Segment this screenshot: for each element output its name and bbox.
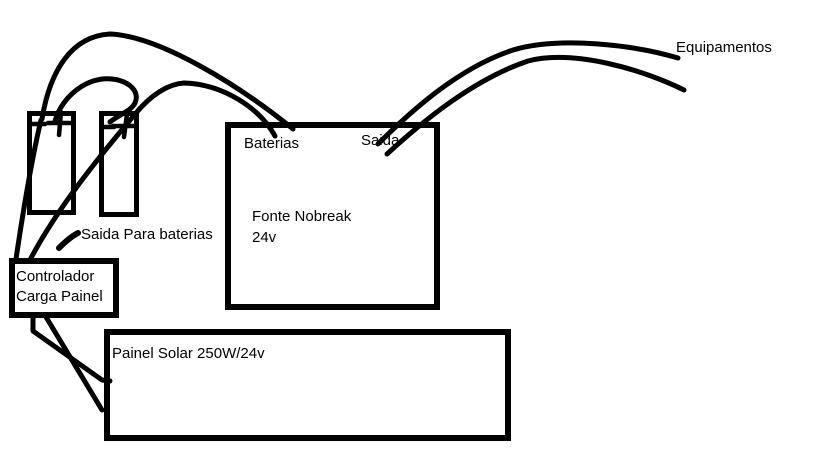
wire-controller-to-painel-1 xyxy=(33,317,110,381)
controlador-label-line1: Controlador xyxy=(16,267,103,287)
wire-battery1-to-nobreak-baterias xyxy=(42,34,293,129)
saida-port-label: Saida xyxy=(361,131,399,151)
painel-solar-label: Painel Solar 250W/24v xyxy=(112,344,265,364)
wire-controller-to-painel-2 xyxy=(46,317,102,410)
battery2-box xyxy=(99,111,139,217)
saida-para-baterias-label: Saida Para baterias xyxy=(81,225,213,245)
saida-para-baterias-pointer xyxy=(59,233,78,248)
fonte-nobreak-name: Fonte Nobreak xyxy=(252,206,351,227)
fonte-nobreak-voltage: 24v xyxy=(252,227,351,248)
baterias-port-label: Baterias xyxy=(244,134,299,154)
fonte-nobreak-label: Fonte Nobreak 24v xyxy=(252,206,351,248)
controlador-label-line2: Carga Painel xyxy=(16,287,103,307)
diagram-canvas: Equipamentos Baterias Saida Fonte Nobrea… xyxy=(0,0,819,460)
equipamentos-label: Equipamentos xyxy=(676,38,772,58)
battery1-box xyxy=(27,111,76,215)
controlador-label: Controlador Carga Painel xyxy=(16,267,103,307)
